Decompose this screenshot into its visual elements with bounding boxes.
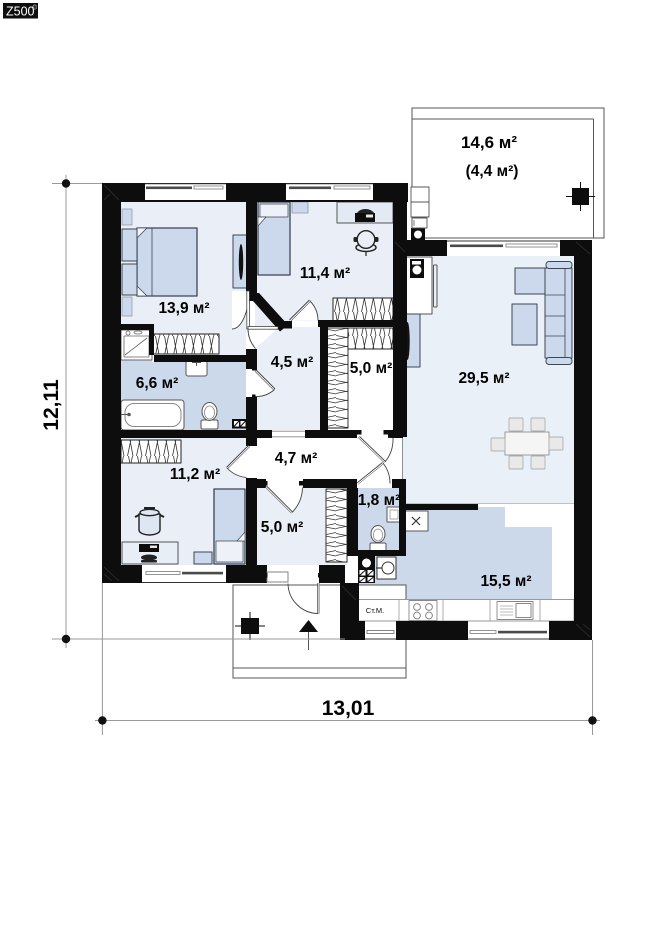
svg-text:6,6 м²: 6,6 м² bbox=[136, 375, 178, 392]
svg-text:15,5 м²: 15,5 м² bbox=[480, 573, 531, 590]
svg-text:4,7 м²: 4,7 м² bbox=[275, 450, 317, 467]
svg-text:(4,4 м²): (4,4 м²) bbox=[466, 163, 519, 180]
svg-text:11,2 м²: 11,2 м² bbox=[170, 466, 220, 483]
svg-text:11,4 м²: 11,4 м² bbox=[300, 265, 350, 282]
svg-text:4,5 м²: 4,5 м² bbox=[271, 354, 313, 371]
svg-text:13,01: 13,01 bbox=[322, 697, 375, 720]
svg-text:14,6 м²: 14,6 м² bbox=[461, 133, 517, 152]
svg-text:13,9 м²: 13,9 м² bbox=[158, 300, 209, 317]
svg-text:1,8 м²: 1,8 м² bbox=[358, 492, 400, 509]
svg-text:12,11: 12,11 bbox=[40, 379, 63, 431]
svg-text:Z500: Z500 bbox=[6, 5, 35, 19]
svg-text:©: © bbox=[33, 5, 38, 12]
svg-text:5,0 м²: 5,0 м² bbox=[350, 360, 392, 377]
svg-text:5,0 м²: 5,0 м² bbox=[261, 519, 303, 536]
svg-text:29,5 м²: 29,5 м² bbox=[458, 370, 509, 387]
svg-text:Ст.М.: Ст.М. bbox=[366, 606, 384, 615]
